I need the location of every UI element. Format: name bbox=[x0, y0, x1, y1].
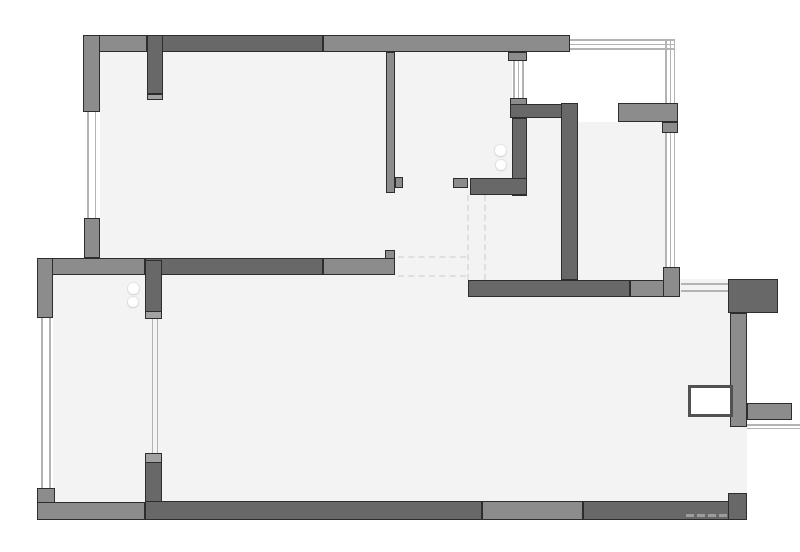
window-topmid-line bbox=[513, 61, 515, 98]
wall-bottom-right-room-dark bbox=[468, 280, 630, 297]
watermark-mark bbox=[697, 514, 705, 517]
balcony-top-line-vertical bbox=[665, 39, 667, 103]
dashed-opening-left-vertical bbox=[467, 195, 469, 280]
balcony-top-line-vertical bbox=[670, 39, 672, 103]
dashed-opening-right-vertical bbox=[484, 195, 486, 280]
wall-bottom-dark-segment-2 bbox=[583, 501, 747, 520]
window-right-line bbox=[674, 133, 676, 267]
floor-kitchen-nook bbox=[527, 118, 562, 196]
window-left-bottom-line bbox=[41, 318, 43, 488]
wall-top-dark-segment bbox=[147, 35, 323, 52]
stub-right-balcony bbox=[747, 403, 792, 420]
outside-top-right bbox=[570, 0, 800, 103]
stub-top-center bbox=[508, 52, 527, 61]
wall-bottom-dark-segment-1 bbox=[145, 501, 482, 520]
wall-bottom-left-segment bbox=[37, 502, 145, 520]
floor-hall-mid bbox=[512, 195, 562, 280]
watermark-mark bbox=[719, 514, 727, 517]
balcony-right-line bbox=[747, 428, 800, 430]
window-left-top-line bbox=[95, 112, 97, 218]
window-topmid-line bbox=[518, 61, 520, 98]
pier-top-left bbox=[83, 35, 100, 112]
wall-bottom-mid-segment bbox=[482, 501, 583, 520]
wall-cap-mid-upper bbox=[145, 311, 162, 319]
partition-top-mid bbox=[386, 52, 395, 193]
block-right bbox=[728, 279, 778, 313]
pier-right bbox=[663, 267, 680, 297]
marker-dot bbox=[128, 297, 138, 307]
pier-mid-left bbox=[84, 218, 100, 258]
wall-vertical-mid-lower bbox=[145, 462, 162, 502]
wall-top-right-segment bbox=[323, 35, 570, 52]
wall-mid-left-segment bbox=[37, 258, 145, 275]
wall-left-upper bbox=[37, 258, 53, 318]
dashed-opening-bottom-horizontal bbox=[398, 275, 466, 277]
floor-room-top-mid bbox=[386, 52, 512, 280]
window-mid-line bbox=[157, 319, 159, 453]
watermark-mark bbox=[686, 514, 694, 517]
balcony-top-line bbox=[570, 44, 674, 46]
balcony-top-line-vertical bbox=[674, 39, 676, 103]
window-left-bottom-line bbox=[49, 318, 51, 488]
radiator-box bbox=[688, 385, 733, 417]
window-bottom-right-line bbox=[681, 283, 728, 285]
wall-balcony-top-right bbox=[618, 103, 678, 122]
marker-dot bbox=[128, 283, 139, 294]
window-topmid-line bbox=[522, 61, 524, 98]
window-left-top-line bbox=[87, 112, 89, 218]
wall-bottom-right-riser bbox=[728, 493, 747, 520]
wall-balcony-leg bbox=[662, 122, 678, 133]
wall-kitchen-right bbox=[561, 103, 578, 280]
window-right-line bbox=[670, 133, 672, 267]
floor-room-top-right bbox=[578, 122, 665, 280]
floorplan-canvas bbox=[0, 0, 800, 552]
watermark-mark bbox=[708, 514, 716, 517]
wall-cap-top-left bbox=[147, 94, 163, 100]
outside-right-upper bbox=[675, 103, 800, 279]
dashed-opening-top-horizontal bbox=[398, 256, 466, 258]
partition-foot bbox=[395, 177, 403, 188]
wall-mid-end-notch bbox=[385, 250, 395, 259]
balcony-top-line bbox=[570, 39, 674, 41]
wall-kitchen-bottom bbox=[470, 178, 527, 195]
door-gap-balcony bbox=[579, 104, 618, 121]
window-mid-line bbox=[152, 319, 154, 453]
wall-vertical-top-left bbox=[147, 35, 163, 94]
balcony-top-line bbox=[570, 48, 674, 50]
wall-mid-dark-segment bbox=[145, 258, 323, 275]
wall-mid-right-segment bbox=[323, 258, 395, 275]
marker-dot bbox=[495, 145, 506, 156]
marker-dot bbox=[496, 160, 506, 170]
window-right-line bbox=[665, 133, 667, 267]
balcony-right-line bbox=[747, 424, 800, 426]
window-bottom-right-line bbox=[681, 290, 728, 292]
wall-vertical-mid-upper bbox=[145, 260, 162, 312]
stub-hallway bbox=[453, 178, 468, 188]
floor-room-top-left bbox=[100, 52, 386, 258]
